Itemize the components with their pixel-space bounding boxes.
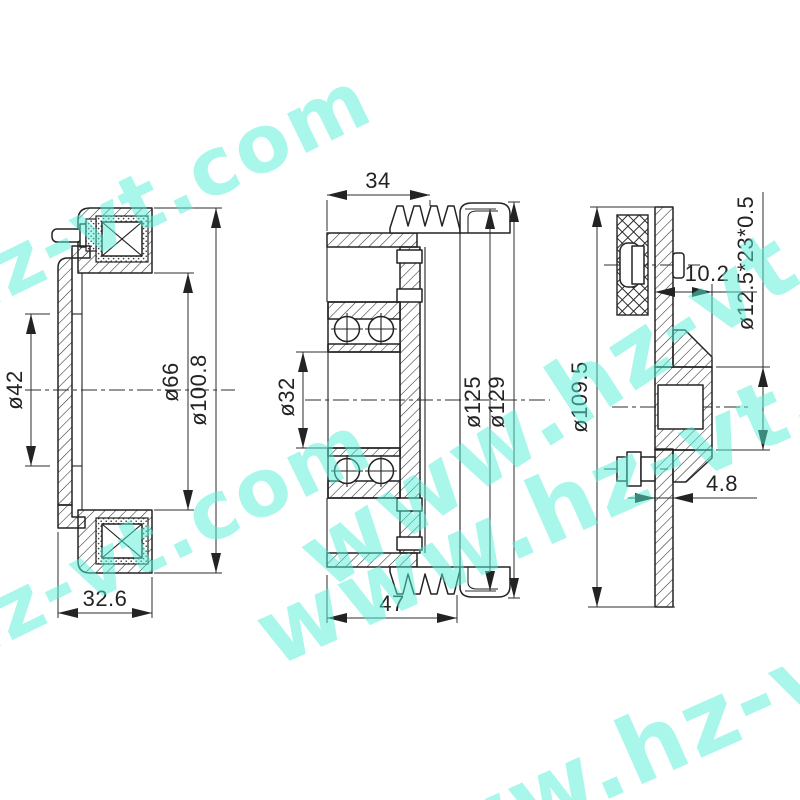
dim-label-coil-outer: ø100.8: [186, 354, 211, 426]
ball-bearing-lower: [328, 448, 400, 498]
pulley-rim-flange-upper: [460, 203, 510, 233]
armature-plate-lower: [655, 449, 673, 607]
dim-label-face-width: 34: [365, 168, 390, 193]
hub-groove-notch: [397, 289, 422, 302]
dim-label-hub-outer: ø109.5: [567, 361, 592, 433]
damper-rivet: [632, 246, 644, 284]
pulley-web-upper: [327, 233, 417, 247]
dim-label-hub-offset: 10.2: [685, 261, 730, 286]
splined-hub: [655, 367, 712, 450]
coil-winding-symbol-upper: [102, 222, 142, 256]
dim-label-coil-bore: ø42: [2, 370, 27, 409]
hub-groove-notch: [397, 537, 422, 550]
dim-label-coil-pocket: ø66: [158, 362, 183, 401]
belt-groove-profile-upper: [390, 206, 460, 233]
dim-label-pulley-bore: ø32: [274, 377, 299, 416]
dim-label-coil-width: 32.6: [83, 586, 128, 611]
rubber-damper: [617, 215, 648, 315]
hub-spline-bore: [658, 385, 703, 429]
coil-housing-lower-section: [78, 510, 152, 573]
rivet-head-boss: [673, 253, 684, 278]
armature-plate-upper: [655, 207, 673, 367]
hub-groove-notch: [397, 250, 422, 263]
stop-rivet: [617, 452, 655, 486]
dim-label-spline-spec: ø12.5*23*0.5: [733, 196, 758, 330]
dim-label-groove-root: ø125: [460, 376, 485, 428]
hub-bracket-upper: [673, 330, 712, 367]
dim-pulley-bore: ø32: [274, 352, 332, 448]
belt-groove-profile-lower: [390, 567, 460, 594]
dim-label-plate-thickness: 4.8: [706, 471, 738, 496]
dim-label-overall-width: 47: [379, 591, 404, 616]
pulley-bearing-section-view: 34 ø32 ø125: [274, 168, 550, 623]
coil-winding-symbol-lower: [102, 524, 142, 558]
dim-coil-bore: ø42: [2, 314, 50, 466]
ball-bearing-upper: [328, 302, 400, 352]
mounting-bracket: [58, 246, 90, 528]
drawing-page: ø42 ø66 ø100.8: [0, 0, 800, 800]
technical-drawing-canvas: ø42 ø66 ø100.8: [0, 0, 800, 800]
dim-label-pulley-outer: ø129: [484, 376, 509, 428]
pulley-web-lower: [327, 553, 417, 567]
armature-hub-section-view: ø109.5 10.2 ø12.5*23*0.5 4: [567, 192, 770, 607]
dim-hub-spline-spec: ø12.5*23*0.5: [716, 192, 770, 450]
hub-groove-notch: [397, 498, 422, 511]
coil-housing-section-view: ø42 ø66 ø100.8: [2, 208, 235, 618]
pulley-rim-flange-lower: [460, 567, 510, 597]
